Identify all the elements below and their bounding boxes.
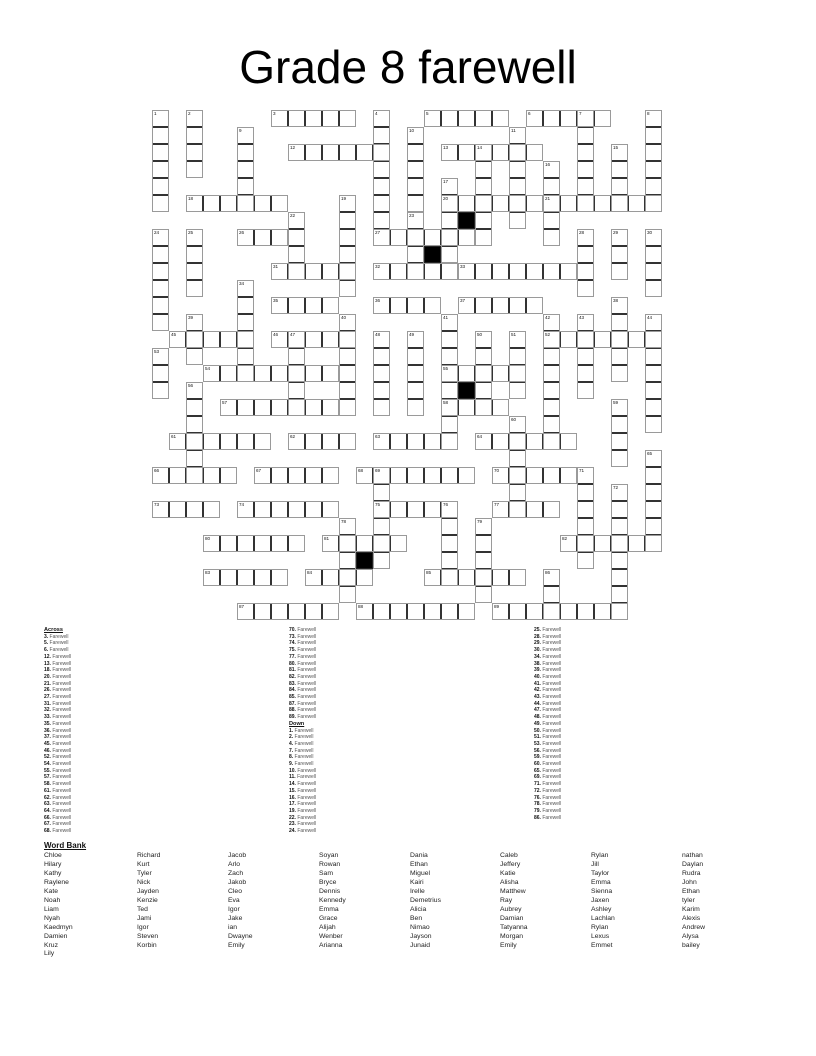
grid-cell[interactable] [373, 535, 390, 552]
grid-cell[interactable] [407, 399, 424, 416]
grid-cell[interactable] [611, 569, 628, 586]
grid-cell[interactable] [407, 161, 424, 178]
grid-cell[interactable] [543, 348, 560, 365]
grid-cell[interactable] [220, 535, 237, 552]
grid-cell[interactable] [271, 501, 288, 518]
grid-cell[interactable] [543, 501, 560, 518]
grid-cell[interactable] [390, 501, 407, 518]
grid-cell[interactable]: 41 [441, 314, 458, 331]
grid-cell[interactable]: 34 [237, 280, 254, 297]
grid-cell[interactable] [492, 144, 509, 161]
grid-cell[interactable] [186, 246, 203, 263]
grid-cell[interactable] [577, 518, 594, 535]
grid-cell[interactable]: 21 [543, 195, 560, 212]
grid-cell[interactable] [152, 365, 169, 382]
grid-cell[interactable] [254, 535, 271, 552]
grid-cell[interactable] [186, 263, 203, 280]
grid-cell[interactable] [339, 399, 356, 416]
grid-cell[interactable] [424, 229, 441, 246]
grid-cell[interactable] [628, 331, 645, 348]
grid-cell[interactable] [390, 433, 407, 450]
grid-cell[interactable] [237, 178, 254, 195]
grid-cell[interactable] [339, 433, 356, 450]
grid-cell[interactable] [475, 399, 492, 416]
grid-cell[interactable] [271, 569, 288, 586]
grid-cell[interactable] [407, 467, 424, 484]
grid-cell[interactable] [339, 348, 356, 365]
grid-cell[interactable] [475, 110, 492, 127]
grid-cell[interactable]: 62 [288, 433, 305, 450]
grid-cell[interactable] [152, 297, 169, 314]
grid-cell[interactable] [509, 603, 526, 620]
grid-cell[interactable] [220, 467, 237, 484]
grid-cell[interactable]: 73 [152, 501, 169, 518]
grid-cell[interactable]: 80 [203, 535, 220, 552]
grid-cell[interactable] [271, 535, 288, 552]
grid-cell[interactable] [611, 552, 628, 569]
grid-cell[interactable]: 52 [543, 331, 560, 348]
grid-cell[interactable]: 28 [577, 229, 594, 246]
grid-cell[interactable]: 49 [407, 331, 424, 348]
grid-cell[interactable] [407, 195, 424, 212]
grid-cell[interactable] [645, 382, 662, 399]
grid-cell[interactable]: 18 [186, 195, 203, 212]
grid-cell[interactable] [577, 161, 594, 178]
grid-cell[interactable] [339, 280, 356, 297]
grid-cell[interactable] [475, 161, 492, 178]
grid-cell[interactable] [441, 416, 458, 433]
grid-cell[interactable] [288, 382, 305, 399]
grid-cell[interactable]: 38 [611, 297, 628, 314]
grid-cell[interactable] [577, 348, 594, 365]
grid-cell[interactable] [152, 246, 169, 263]
grid-cell[interactable] [526, 297, 543, 314]
grid-cell[interactable]: 83 [203, 569, 220, 586]
grid-cell[interactable] [203, 195, 220, 212]
grid-cell[interactable]: 47 [288, 331, 305, 348]
grid-cell[interactable]: 45 [169, 331, 186, 348]
grid-cell[interactable] [254, 365, 271, 382]
grid-cell[interactable] [186, 450, 203, 467]
grid-cell[interactable] [441, 212, 458, 229]
grid-cell[interactable] [594, 110, 611, 127]
grid-cell[interactable] [475, 365, 492, 382]
grid-cell[interactable] [560, 467, 577, 484]
grid-cell[interactable] [407, 433, 424, 450]
grid-cell[interactable] [339, 144, 356, 161]
grid-cell[interactable] [322, 501, 339, 518]
grid-cell[interactable] [152, 195, 169, 212]
grid-cell[interactable] [594, 603, 611, 620]
grid-cell[interactable] [390, 297, 407, 314]
grid-cell[interactable] [373, 552, 390, 569]
grid-cell[interactable] [492, 399, 509, 416]
grid-cell[interactable]: 59 [611, 399, 628, 416]
grid-cell[interactable]: 2 [186, 110, 203, 127]
grid-cell[interactable] [390, 263, 407, 280]
grid-cell[interactable] [475, 263, 492, 280]
grid-cell[interactable] [492, 110, 509, 127]
grid-cell[interactable] [509, 263, 526, 280]
grid-cell[interactable]: 19 [339, 195, 356, 212]
grid-cell[interactable] [288, 229, 305, 246]
grid-cell[interactable]: 69 [373, 467, 390, 484]
grid-cell[interactable] [373, 144, 390, 161]
grid-cell[interactable]: 1 [152, 110, 169, 127]
grid-cell[interactable] [152, 178, 169, 195]
grid-cell[interactable] [458, 399, 475, 416]
grid-cell[interactable] [543, 399, 560, 416]
grid-cell[interactable] [441, 229, 458, 246]
grid-cell[interactable] [237, 144, 254, 161]
grid-cell[interactable] [577, 127, 594, 144]
grid-cell[interactable] [577, 552, 594, 569]
grid-cell[interactable] [186, 161, 203, 178]
grid-cell[interactable]: 51 [509, 331, 526, 348]
grid-cell[interactable] [305, 603, 322, 620]
grid-cell[interactable] [373, 127, 390, 144]
grid-cell[interactable] [322, 433, 339, 450]
grid-cell[interactable] [611, 314, 628, 331]
grid-cell[interactable] [237, 331, 254, 348]
grid-cell[interactable] [611, 178, 628, 195]
grid-cell[interactable] [458, 229, 475, 246]
grid-cell[interactable] [186, 144, 203, 161]
grid-cell[interactable] [237, 348, 254, 365]
grid-cell[interactable] [356, 535, 373, 552]
grid-cell[interactable] [458, 569, 475, 586]
grid-cell[interactable] [220, 195, 237, 212]
grid-cell[interactable] [339, 110, 356, 127]
grid-cell[interactable] [390, 229, 407, 246]
grid-cell[interactable] [475, 212, 492, 229]
grid-cell[interactable]: 68 [356, 467, 373, 484]
grid-cell[interactable] [645, 348, 662, 365]
grid-cell[interactable] [492, 569, 509, 586]
grid-cell[interactable] [543, 263, 560, 280]
grid-cell[interactable]: 13 [441, 144, 458, 161]
grid-cell[interactable] [543, 603, 560, 620]
grid-cell[interactable] [458, 603, 475, 620]
grid-cell[interactable]: 30 [645, 229, 662, 246]
grid-cell[interactable] [186, 280, 203, 297]
grid-cell[interactable] [611, 501, 628, 518]
grid-cell[interactable] [611, 433, 628, 450]
grid-cell[interactable] [611, 518, 628, 535]
grid-cell[interactable] [628, 535, 645, 552]
grid-cell[interactable]: 58 [441, 399, 458, 416]
grid-cell[interactable] [611, 586, 628, 603]
grid-cell[interactable] [424, 501, 441, 518]
grid-cell[interactable] [611, 603, 628, 620]
grid-cell[interactable]: 24 [152, 229, 169, 246]
grid-cell[interactable] [509, 212, 526, 229]
grid-cell[interactable] [441, 382, 458, 399]
grid-cell[interactable] [441, 348, 458, 365]
grid-cell[interactable] [645, 178, 662, 195]
grid-cell[interactable] [611, 450, 628, 467]
grid-cell[interactable] [407, 365, 424, 382]
grid-cell[interactable] [509, 144, 526, 161]
grid-cell[interactable] [475, 535, 492, 552]
grid-cell[interactable]: 64 [475, 433, 492, 450]
grid-cell[interactable] [288, 348, 305, 365]
grid-cell[interactable] [594, 331, 611, 348]
grid-cell[interactable] [254, 501, 271, 518]
grid-cell[interactable] [186, 127, 203, 144]
grid-cell[interactable] [645, 161, 662, 178]
grid-cell[interactable]: 85 [424, 569, 441, 586]
grid-cell[interactable] [543, 467, 560, 484]
grid-cell[interactable] [509, 178, 526, 195]
grid-cell[interactable]: 39 [186, 314, 203, 331]
grid-cell[interactable] [458, 144, 475, 161]
grid-cell[interactable] [611, 161, 628, 178]
grid-cell[interactable] [373, 365, 390, 382]
grid-cell[interactable] [424, 297, 441, 314]
grid-cell[interactable] [577, 195, 594, 212]
grid-cell[interactable] [288, 501, 305, 518]
grid-cell[interactable] [509, 467, 526, 484]
grid-cell[interactable] [645, 535, 662, 552]
grid-cell[interactable] [577, 535, 594, 552]
grid-cell[interactable] [407, 382, 424, 399]
grid-cell[interactable]: 27 [373, 229, 390, 246]
grid-cell[interactable]: 22 [288, 212, 305, 229]
grid-cell[interactable]: 25 [186, 229, 203, 246]
grid-cell[interactable] [186, 348, 203, 365]
grid-cell[interactable]: 36 [373, 297, 390, 314]
grid-cell[interactable] [152, 144, 169, 161]
grid-cell[interactable] [305, 399, 322, 416]
grid-cell[interactable] [509, 161, 526, 178]
grid-cell[interactable] [458, 365, 475, 382]
grid-cell[interactable] [322, 467, 339, 484]
grid-cell[interactable] [152, 382, 169, 399]
grid-cell[interactable]: 40 [339, 314, 356, 331]
grid-cell[interactable] [254, 399, 271, 416]
grid-cell[interactable] [339, 535, 356, 552]
grid-cell[interactable]: 33 [458, 263, 475, 280]
grid-cell[interactable] [543, 110, 560, 127]
grid-cell[interactable] [288, 365, 305, 382]
grid-cell[interactable] [441, 603, 458, 620]
grid-cell[interactable] [560, 433, 577, 450]
grid-cell[interactable] [645, 484, 662, 501]
grid-cell[interactable] [305, 263, 322, 280]
grid-cell[interactable] [237, 365, 254, 382]
grid-cell[interactable] [237, 433, 254, 450]
grid-cell[interactable]: 60 [509, 416, 526, 433]
grid-cell[interactable] [441, 263, 458, 280]
grid-cell[interactable] [339, 212, 356, 229]
grid-cell[interactable] [492, 365, 509, 382]
grid-cell[interactable] [560, 603, 577, 620]
grid-cell[interactable] [611, 331, 628, 348]
grid-cell[interactable]: 71 [577, 467, 594, 484]
grid-cell[interactable]: 15 [611, 144, 628, 161]
grid-cell[interactable] [645, 416, 662, 433]
grid-cell[interactable] [594, 195, 611, 212]
grid-cell[interactable] [254, 569, 271, 586]
grid-cell[interactable] [475, 229, 492, 246]
grid-cell[interactable] [543, 365, 560, 382]
grid-cell[interactable] [203, 331, 220, 348]
grid-cell[interactable] [237, 314, 254, 331]
grid-cell[interactable] [577, 178, 594, 195]
grid-cell[interactable] [288, 467, 305, 484]
grid-cell[interactable]: 20 [441, 195, 458, 212]
grid-cell[interactable] [509, 501, 526, 518]
grid-cell[interactable] [509, 297, 526, 314]
grid-cell[interactable] [237, 399, 254, 416]
grid-cell[interactable] [339, 552, 356, 569]
grid-cell[interactable] [237, 195, 254, 212]
grid-cell[interactable] [339, 263, 356, 280]
grid-cell[interactable] [373, 178, 390, 195]
grid-cell[interactable] [509, 569, 526, 586]
grid-cell[interactable] [271, 467, 288, 484]
grid-cell[interactable] [152, 161, 169, 178]
grid-cell[interactable]: 86 [543, 569, 560, 586]
grid-cell[interactable]: 3 [271, 110, 288, 127]
grid-cell[interactable] [305, 297, 322, 314]
grid-cell[interactable] [441, 552, 458, 569]
grid-cell[interactable] [186, 416, 203, 433]
grid-cell[interactable]: 57 [220, 399, 237, 416]
grid-cell[interactable] [339, 331, 356, 348]
grid-cell[interactable] [526, 195, 543, 212]
grid-cell[interactable] [271, 195, 288, 212]
grid-cell[interactable] [475, 297, 492, 314]
grid-cell[interactable] [254, 229, 271, 246]
grid-cell[interactable] [441, 569, 458, 586]
grid-cell[interactable] [543, 586, 560, 603]
grid-cell[interactable] [577, 263, 594, 280]
grid-cell[interactable] [645, 263, 662, 280]
grid-cell[interactable] [339, 382, 356, 399]
grid-cell[interactable] [577, 280, 594, 297]
grid-cell[interactable] [288, 110, 305, 127]
grid-cell[interactable] [543, 229, 560, 246]
grid-cell[interactable] [543, 212, 560, 229]
grid-cell[interactable] [645, 144, 662, 161]
grid-cell[interactable] [203, 433, 220, 450]
grid-cell[interactable] [373, 161, 390, 178]
grid-cell[interactable] [526, 144, 543, 161]
grid-cell[interactable] [577, 501, 594, 518]
grid-cell[interactable]: 53 [152, 348, 169, 365]
grid-cell[interactable] [611, 348, 628, 365]
grid-cell[interactable]: 56 [186, 382, 203, 399]
grid-cell[interactable] [186, 433, 203, 450]
grid-cell[interactable] [152, 314, 169, 331]
grid-cell[interactable] [254, 433, 271, 450]
grid-cell[interactable] [288, 535, 305, 552]
grid-cell[interactable] [611, 263, 628, 280]
grid-cell[interactable] [475, 586, 492, 603]
grid-cell[interactable]: 79 [475, 518, 492, 535]
grid-cell[interactable] [373, 484, 390, 501]
grid-cell[interactable] [424, 433, 441, 450]
grid-cell[interactable]: 82 [560, 535, 577, 552]
grid-cell[interactable]: 72 [611, 484, 628, 501]
grid-cell[interactable] [611, 246, 628, 263]
grid-cell[interactable] [305, 501, 322, 518]
grid-cell[interactable] [152, 280, 169, 297]
grid-cell[interactable] [339, 229, 356, 246]
grid-cell[interactable] [390, 603, 407, 620]
grid-cell[interactable] [645, 399, 662, 416]
grid-cell[interactable]: 4 [373, 110, 390, 127]
grid-cell[interactable]: 42 [543, 314, 560, 331]
grid-cell[interactable] [645, 501, 662, 518]
grid-cell[interactable] [305, 433, 322, 450]
grid-cell[interactable] [237, 297, 254, 314]
grid-cell[interactable] [407, 297, 424, 314]
grid-cell[interactable] [390, 467, 407, 484]
grid-cell[interactable] [424, 603, 441, 620]
grid-cell[interactable] [645, 518, 662, 535]
grid-cell[interactable] [611, 195, 628, 212]
grid-cell[interactable]: 88 [356, 603, 373, 620]
grid-cell[interactable] [288, 603, 305, 620]
grid-cell[interactable]: 29 [611, 229, 628, 246]
grid-cell[interactable] [288, 399, 305, 416]
grid-cell[interactable]: 12 [288, 144, 305, 161]
grid-cell[interactable] [526, 263, 543, 280]
grid-cell[interactable] [645, 467, 662, 484]
grid-cell[interactable] [577, 144, 594, 161]
grid-cell[interactable] [322, 331, 339, 348]
grid-cell[interactable]: 6 [526, 110, 543, 127]
grid-cell[interactable] [543, 416, 560, 433]
grid-cell[interactable] [407, 229, 424, 246]
grid-cell[interactable] [560, 110, 577, 127]
grid-cell[interactable] [526, 603, 543, 620]
grid-cell[interactable]: 32 [373, 263, 390, 280]
grid-cell[interactable] [441, 433, 458, 450]
grid-cell[interactable] [441, 518, 458, 535]
grid-cell[interactable]: 46 [271, 331, 288, 348]
grid-cell[interactable]: 61 [169, 433, 186, 450]
grid-cell[interactable] [560, 331, 577, 348]
grid-cell[interactable] [645, 280, 662, 297]
grid-cell[interactable] [492, 195, 509, 212]
grid-cell[interactable]: 54 [203, 365, 220, 382]
grid-cell[interactable] [271, 229, 288, 246]
grid-cell[interactable] [594, 535, 611, 552]
grid-cell[interactable] [390, 535, 407, 552]
grid-cell[interactable]: 11 [509, 127, 526, 144]
grid-cell[interactable] [305, 144, 322, 161]
grid-cell[interactable] [475, 382, 492, 399]
grid-cell[interactable] [373, 348, 390, 365]
grid-cell[interactable] [373, 212, 390, 229]
grid-cell[interactable] [322, 569, 339, 586]
grid-cell[interactable] [492, 433, 509, 450]
grid-cell[interactable]: 35 [271, 297, 288, 314]
grid-cell[interactable] [373, 518, 390, 535]
grid-cell[interactable] [407, 603, 424, 620]
grid-cell[interactable] [611, 416, 628, 433]
grid-cell[interactable] [441, 467, 458, 484]
grid-cell[interactable] [526, 433, 543, 450]
grid-cell[interactable] [322, 297, 339, 314]
grid-cell[interactable] [492, 263, 509, 280]
grid-cell[interactable]: 37 [458, 297, 475, 314]
grid-cell[interactable] [458, 467, 475, 484]
